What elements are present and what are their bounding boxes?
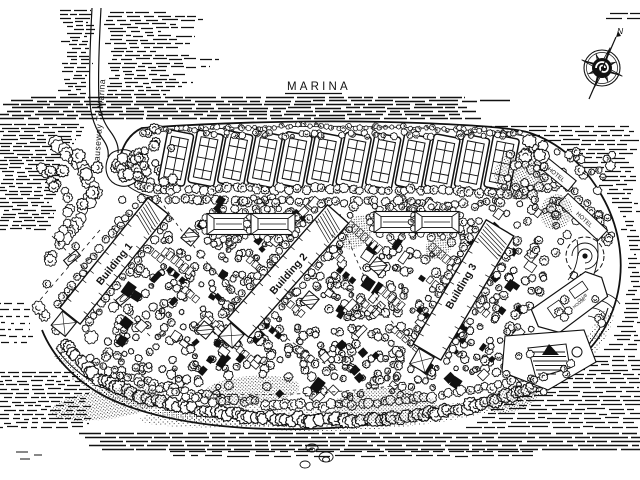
svg-text:N: N <box>617 26 624 36</box>
svg-text:MARINA: MARINA <box>287 81 351 93</box>
